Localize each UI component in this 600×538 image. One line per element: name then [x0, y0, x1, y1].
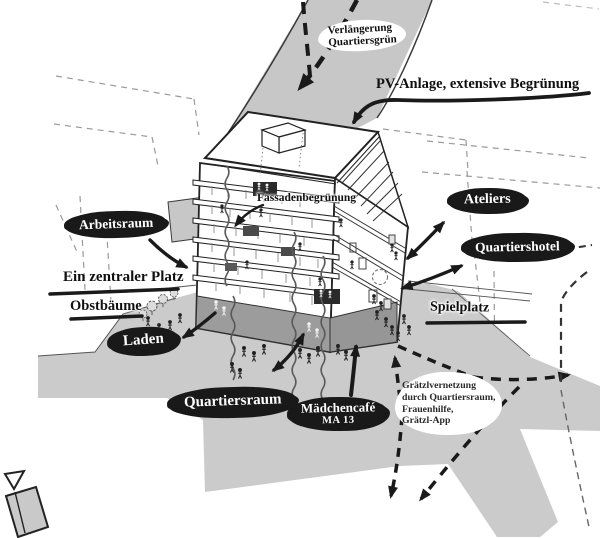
- graetzl-line2: durch Quartiersraum,: [402, 392, 495, 403]
- architectural-diagram: Verlängerung Quartiersgrün PV-Anlage, ex…: [0, 0, 600, 538]
- obstbaeume-label: Obstbäume: [70, 299, 142, 314]
- site-plan-fragments: [5, 471, 48, 537]
- graetzl-line1: Grätzlvernetzung: [402, 380, 476, 391]
- spielplatz-label: Spielplatz: [430, 300, 489, 316]
- pv-anlage-label: PV-Anlage, extensive Begrünung: [376, 77, 579, 92]
- verlaengerung-line2: Quartiersgrün: [328, 33, 397, 49]
- arbeitsraum-arrow: [150, 240, 186, 267]
- maedchencafe-line2: MA 13: [301, 414, 376, 426]
- fassadenbegruenung-label: Fassadenbegrünung: [257, 192, 356, 204]
- ein-zentraler-platz-label: Ein zentraler Platz: [63, 270, 184, 286]
- ateliers-arrow: [408, 223, 443, 258]
- graetzl-line4: Grätzl-App: [402, 415, 450, 426]
- graetzl-line3: Frauenhilfe,: [402, 404, 453, 415]
- maedchencafe-line1: Mädchencafé: [301, 399, 376, 415]
- graetzlvernetzung-label: Grätzlvernetzung durch Quartiersraum, Fr…: [395, 372, 502, 435]
